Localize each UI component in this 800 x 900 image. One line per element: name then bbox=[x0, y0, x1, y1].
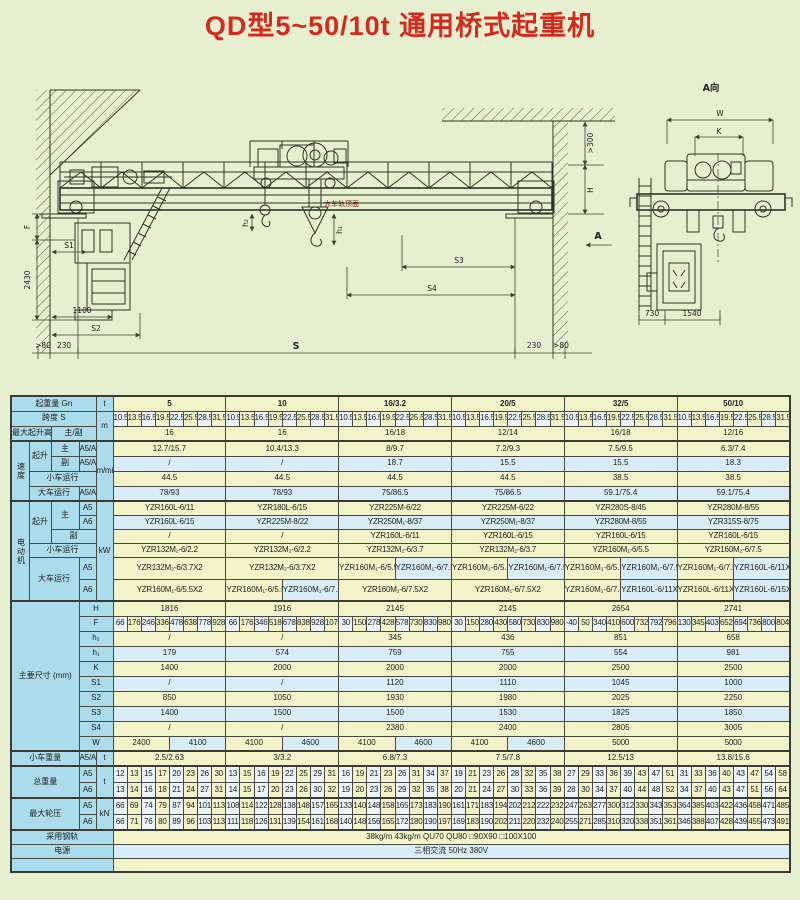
table-cell: 50/10 bbox=[677, 396, 790, 411]
table-cell: 3005 bbox=[677, 721, 790, 736]
table-cell: 491 bbox=[776, 814, 790, 830]
label-wheel-load: 最大轮压 bbox=[11, 798, 79, 830]
table-cell: 850 bbox=[113, 691, 226, 706]
dim-s2-label: S2 bbox=[91, 324, 101, 333]
table-cell: 25.5 bbox=[635, 411, 649, 426]
trolley-cross-section bbox=[665, 154, 773, 191]
table-cell: 22.5 bbox=[169, 411, 183, 426]
label-main: 主 bbox=[51, 441, 79, 456]
table-cell: 139 bbox=[282, 814, 296, 830]
table-cell: 13 bbox=[113, 782, 127, 798]
table-cell: 13.5 bbox=[127, 411, 141, 426]
table-cell: 140 bbox=[353, 798, 367, 814]
section-view-drawing: A向 W K bbox=[625, 58, 795, 348]
table-cell: 1078 bbox=[325, 616, 339, 631]
table-cell: 16 bbox=[113, 426, 226, 441]
label-dim-S2: S2 bbox=[79, 691, 113, 706]
table-cell: 364 bbox=[677, 798, 691, 814]
table-cell: 2000 bbox=[451, 661, 564, 676]
table-cell: 183 bbox=[465, 814, 479, 830]
table-cell: 150 bbox=[353, 616, 367, 631]
table-cell: 678 bbox=[282, 616, 296, 631]
dim-gt80-left-label: >80 bbox=[35, 341, 51, 350]
table-cell: 16 bbox=[226, 426, 339, 441]
table-cell: 336 bbox=[155, 616, 169, 631]
table-cell: 26 bbox=[395, 766, 409, 782]
table-cell: 148 bbox=[353, 814, 367, 830]
table-cell: 1980 bbox=[451, 691, 564, 706]
table-cell: 403 bbox=[705, 798, 719, 814]
label-motor-group: 电动机 bbox=[11, 501, 29, 601]
table-cell: 31 bbox=[677, 766, 691, 782]
table-cell: YZR250M₁-8/37 bbox=[451, 515, 564, 529]
dim-1540-label: 1540 bbox=[682, 309, 701, 318]
table-cell: 31 bbox=[212, 782, 226, 798]
table-cell: 4600 bbox=[508, 736, 564, 751]
table-cell: 730 bbox=[409, 616, 423, 631]
table-cell: 190 bbox=[480, 814, 494, 830]
table-cell: 54 bbox=[762, 766, 776, 782]
table-cell: 12.7/15.7 bbox=[113, 441, 226, 456]
table-cell: 28 bbox=[564, 782, 578, 798]
table-cell: 20/5 bbox=[451, 396, 564, 411]
table-cell: 40 bbox=[621, 782, 635, 798]
stairs bbox=[124, 188, 170, 260]
table-cell: 430 bbox=[494, 616, 508, 631]
table-cell: 27 bbox=[564, 766, 578, 782]
table-cell: 5 bbox=[113, 396, 226, 411]
table-cell: YZR160L-6/11 bbox=[113, 501, 226, 515]
table-cell: / bbox=[113, 529, 226, 543]
table-cell: 410 bbox=[607, 616, 621, 631]
dim-h2-label: h₂ bbox=[241, 219, 250, 227]
table-cell: 694 bbox=[733, 616, 747, 631]
label-lift-height: 最大起升高度 bbox=[11, 426, 51, 441]
table-cell: 38.5 bbox=[677, 471, 790, 486]
table-cell: 20 bbox=[268, 782, 282, 798]
label-dim-S4: S4 bbox=[79, 721, 113, 736]
table-cell: 473 bbox=[762, 814, 776, 830]
label-unit-t: t bbox=[96, 766, 113, 798]
table-cell: 458 bbox=[748, 798, 762, 814]
table-cell: 13.5 bbox=[240, 411, 254, 426]
table-cell: 1400 bbox=[113, 661, 226, 676]
table-cell: 183 bbox=[480, 798, 494, 814]
table-cell: 7.2/9.3 bbox=[451, 441, 564, 456]
table-cell: 13.5 bbox=[578, 411, 592, 426]
table-cell: YZR160M₁-6/5.5X2 bbox=[113, 579, 226, 601]
table-cell: 43 bbox=[733, 766, 747, 782]
label-unit-kn: kN bbox=[96, 798, 113, 830]
table-cell: 169 bbox=[451, 814, 465, 830]
table-cell: 202 bbox=[494, 814, 508, 830]
table-cell: 28.5 bbox=[423, 411, 437, 426]
table-cell: YZR132M₂-6/3.7 bbox=[339, 543, 452, 557]
table-cell: 792 bbox=[649, 616, 663, 631]
table-cell: 1050 bbox=[226, 691, 339, 706]
table-row: 小车重量A5/A6t2.5/2.633/3.26.8/7.37.5/7.812.… bbox=[11, 751, 790, 766]
table-cell: 8/9.7 bbox=[339, 441, 452, 456]
table-cell: 138 bbox=[282, 798, 296, 814]
table-cell: 19.5 bbox=[381, 411, 395, 426]
label-a6: A6 bbox=[79, 579, 96, 601]
table-cell: 26 bbox=[198, 766, 212, 782]
table-cell: 148 bbox=[367, 798, 381, 814]
table-cell: 345 bbox=[691, 616, 705, 631]
table-cell: 64 bbox=[776, 782, 790, 798]
table-cell: YZR280M-8/55 bbox=[677, 501, 790, 515]
table-cell: 246 bbox=[141, 616, 155, 631]
table-cell: 194 bbox=[494, 798, 508, 814]
dim-gt80-right-label: >80 bbox=[553, 341, 569, 350]
table-cell: 310 bbox=[607, 814, 621, 830]
table-cell: 12 bbox=[113, 766, 127, 782]
table-cell: YZR160L-6/15 bbox=[451, 529, 564, 543]
label-a5a6: A5/A6 bbox=[79, 486, 96, 501]
table-cell: / bbox=[113, 721, 226, 736]
table-cell: 172 bbox=[395, 814, 409, 830]
table-cell: 157 bbox=[310, 798, 324, 814]
table-cell: 31.5 bbox=[550, 411, 564, 426]
table-cell: 851 bbox=[564, 631, 677, 646]
table-cell: YZR160M₁-6/7.5X2 bbox=[395, 557, 451, 579]
label-hoist: 起升 bbox=[29, 441, 51, 471]
table-cell: 312 bbox=[621, 798, 635, 814]
page: QD型5~50/10t 通用桥式起重机 bbox=[0, 0, 800, 900]
table-cell: -40 bbox=[564, 616, 578, 631]
table-cell: 2400 bbox=[113, 736, 169, 751]
table-cell: 33 bbox=[522, 782, 536, 798]
table-cell: YZR160L-6/15 bbox=[564, 529, 677, 543]
table-cell: 165 bbox=[325, 798, 339, 814]
table-cell: YZR160M₁-6/7.5X2 bbox=[508, 557, 564, 579]
table-cell: 176 bbox=[127, 616, 141, 631]
table-cell: 15.5 bbox=[451, 456, 564, 471]
table-cell: 346 bbox=[254, 616, 268, 631]
label-trolley-weight: 小车重量 bbox=[11, 751, 79, 766]
table-cell: 10.5 bbox=[677, 411, 691, 426]
dimension-lines bbox=[32, 122, 612, 359]
table-cell: 20 bbox=[169, 766, 183, 782]
table-cell: 161 bbox=[451, 798, 465, 814]
table-row: 主要尺寸 (mm)H181619162145214526542741 bbox=[11, 601, 790, 616]
table-cell: YZR160L-6/15 bbox=[113, 515, 226, 529]
table-cell: YZR160M₁-6/7.5X2 bbox=[339, 579, 452, 601]
dim-2430-label: 2430 bbox=[23, 270, 32, 289]
table-cell: 2500 bbox=[564, 661, 677, 676]
table-cell: 33 bbox=[592, 766, 606, 782]
table-cell: 154 bbox=[296, 814, 310, 830]
table-cell: 212 bbox=[522, 798, 536, 814]
table-cell: 730 bbox=[522, 616, 536, 631]
table-cell: 190 bbox=[437, 798, 451, 814]
table-cell: 5000 bbox=[677, 736, 790, 751]
table-cell: 173 bbox=[409, 798, 423, 814]
label-main-aux: 主/副 bbox=[51, 426, 96, 441]
table-cell: 23 bbox=[282, 782, 296, 798]
table-cell: 23 bbox=[381, 766, 395, 782]
table-cell: YZR132M₂-6/3.7 bbox=[451, 543, 564, 557]
table-cell: 32 bbox=[409, 782, 423, 798]
view-arrow-label: A bbox=[594, 231, 602, 242]
table-cell: 10.5 bbox=[339, 411, 353, 426]
table-cell: 34 bbox=[423, 766, 437, 782]
table-cell: 385 bbox=[691, 798, 705, 814]
table-cell: 211 bbox=[508, 814, 522, 830]
table-cell: 22.5 bbox=[508, 411, 522, 426]
table-cell: 28.5 bbox=[198, 411, 212, 426]
table-cell: 23 bbox=[367, 782, 381, 798]
table-cell: 12.5/13 bbox=[564, 751, 677, 766]
table-cell: YZR160M₁-6/7.5X2 bbox=[451, 579, 564, 601]
table-cell: 30 bbox=[212, 766, 226, 782]
table-cell: 118 bbox=[240, 814, 254, 830]
table-cell: 16.5 bbox=[592, 411, 606, 426]
table-cell: / bbox=[226, 631, 339, 646]
table-cell: YZR160M₁-6/7.5X2 bbox=[677, 557, 733, 579]
table-cell: 31 bbox=[325, 766, 339, 782]
table-cell: 4100 bbox=[226, 736, 282, 751]
table-cell: 12/14 bbox=[451, 426, 564, 441]
table-row: 采用钢轨38kg/m 43kg/m QU70 QU80 □90X90 □100X… bbox=[11, 830, 790, 844]
table-cell: 10.4/13.3 bbox=[226, 441, 339, 456]
table-cell: 804 bbox=[776, 616, 790, 631]
table-cell: 16/18 bbox=[564, 426, 677, 441]
table-cell: YZR225M-6/22 bbox=[339, 501, 452, 515]
table-cell: 13 bbox=[127, 766, 141, 782]
table-cell: 15 bbox=[240, 782, 254, 798]
table-cell: 388 bbox=[691, 814, 705, 830]
table-cell: / bbox=[226, 676, 339, 691]
table-cell: 4100 bbox=[451, 736, 507, 751]
table-cell: 471 bbox=[762, 798, 776, 814]
table-cell: 32 bbox=[325, 782, 339, 798]
table-cell: / bbox=[113, 631, 226, 646]
table-cell: 108 bbox=[226, 798, 240, 814]
table-cell: 25.5 bbox=[522, 411, 536, 426]
table-cell: 6.8/7.3 bbox=[339, 751, 452, 766]
table-cell: YZR160M₁-6/5.5X2 bbox=[451, 557, 507, 579]
table-cell: 351 bbox=[649, 814, 663, 830]
table-cell: YZR132M₂-6/3.7X2 bbox=[226, 557, 339, 579]
table-cell: YZR160M₁-6/5.5X2 bbox=[226, 579, 282, 601]
table-cell: 232 bbox=[550, 798, 564, 814]
dim-f-label: F bbox=[23, 225, 32, 229]
table-cell: 2000 bbox=[339, 661, 452, 676]
table-cell: 71 bbox=[127, 814, 141, 830]
table-cell: 27 bbox=[198, 782, 212, 798]
table-cell: 4600 bbox=[282, 736, 338, 751]
table-cell: 66 bbox=[113, 616, 127, 631]
table-cell: YZR315S-8/75 bbox=[677, 515, 790, 529]
table-cell: 75/86.5 bbox=[339, 486, 452, 501]
table-cell: 23 bbox=[480, 766, 494, 782]
table-cell: 7.5/9.5 bbox=[564, 441, 677, 456]
table-cell: 44.5 bbox=[339, 471, 452, 486]
table-cell: 18.3 bbox=[677, 456, 790, 471]
table-cell: 20 bbox=[353, 782, 367, 798]
label-power: 电源 bbox=[11, 844, 113, 858]
table-cell: 4600 bbox=[395, 736, 451, 751]
table-cell: 179 bbox=[113, 646, 226, 661]
table-cell: 3/3.2 bbox=[226, 751, 339, 766]
table-row: 最大起升高度主/副161616/1812/1416/1812/16 bbox=[11, 426, 790, 441]
table-cell: 26 bbox=[381, 782, 395, 798]
label-unit-kw: kW bbox=[96, 501, 113, 601]
table-row: 电源三相交流 50Hz 380V bbox=[11, 844, 790, 858]
table-cell: 277 bbox=[592, 798, 606, 814]
table-cell: 10.5 bbox=[113, 411, 127, 426]
label-dim-h2: h₂ bbox=[79, 631, 113, 646]
table-cell: 74 bbox=[141, 798, 155, 814]
table-cell: 30 bbox=[339, 616, 353, 631]
table-cell: 31.5 bbox=[776, 411, 790, 426]
table-cell: 21 bbox=[465, 766, 479, 782]
table-cell: 16.5 bbox=[705, 411, 719, 426]
table-cell: YZR160L-6/11X2 bbox=[621, 579, 677, 601]
dim-1100-label: 1100 bbox=[72, 306, 91, 315]
table-cell: 2741 bbox=[677, 601, 790, 616]
table-cell: 22.5 bbox=[621, 411, 635, 426]
table-cell: 19.5 bbox=[155, 411, 169, 426]
table-row: A666717680899610311311111812613113915416… bbox=[11, 814, 790, 830]
table-cell: 10 bbox=[226, 396, 339, 411]
table-cell: 6.3/7.4 bbox=[677, 441, 790, 456]
table-cell: 580 bbox=[508, 616, 522, 631]
label-crane-travel: 大车运行 bbox=[29, 486, 79, 501]
table-cell: 518 bbox=[268, 616, 282, 631]
table-cell: 19.5 bbox=[607, 411, 621, 426]
table-cell: 130 bbox=[677, 616, 691, 631]
table-cell: 15.5 bbox=[564, 456, 677, 471]
table-cell: 1110 bbox=[451, 676, 564, 691]
table-cell: 35 bbox=[536, 766, 550, 782]
table-cell: 197 bbox=[437, 814, 451, 830]
table-cell: 35 bbox=[423, 782, 437, 798]
table-cell: 28.5 bbox=[536, 411, 550, 426]
table-cell: 16/18 bbox=[339, 426, 452, 441]
table-cell: 25 bbox=[296, 766, 310, 782]
table-cell: 1916 bbox=[226, 601, 339, 616]
table-cell: YZR160M₁-6/7.5X2 bbox=[282, 579, 338, 601]
table-cell: 578 bbox=[395, 616, 409, 631]
table-cell: 278 bbox=[367, 616, 381, 631]
table-cell: 16/3.2 bbox=[339, 396, 452, 411]
table-cell: YZR160M₂-6/7.5 bbox=[677, 543, 790, 557]
label-aux: 副 bbox=[51, 456, 79, 471]
table-cell: 16 bbox=[254, 766, 268, 782]
table-cell: 652 bbox=[719, 616, 733, 631]
table-cell: 10.5 bbox=[226, 411, 240, 426]
table-cell: 300 bbox=[607, 798, 621, 814]
table-cell: 22.5 bbox=[282, 411, 296, 426]
table-cell: 131 bbox=[268, 814, 282, 830]
table-cell: 240 bbox=[550, 814, 564, 830]
table-row: 速度起升主A5/A6m/min12.7/15.710.4/13.38/9.77.… bbox=[11, 441, 790, 456]
table-cell: 19 bbox=[268, 766, 282, 782]
table-cell: 10.5 bbox=[451, 411, 465, 426]
table-cell: 25.5 bbox=[184, 411, 198, 426]
table-cell: 285 bbox=[592, 814, 606, 830]
table-cell: 732 bbox=[635, 616, 649, 631]
table-cell: 12/16 bbox=[677, 426, 790, 441]
dim-gt300-label: >300 bbox=[586, 132, 595, 153]
label-dim-h1: h₁ bbox=[79, 646, 113, 661]
table-cell: 32/5 bbox=[564, 396, 677, 411]
spec-table-grid: 起重量 Gnt51016/3.220/532/550/10跨度 Sm10.513… bbox=[10, 395, 791, 873]
table-cell: 25.5 bbox=[748, 411, 762, 426]
table-cell: 928 bbox=[212, 616, 226, 631]
table-cell: 830 bbox=[423, 616, 437, 631]
table-cell: YZR160L-6/11X2 bbox=[733, 557, 789, 579]
table-cell: 247 bbox=[564, 798, 578, 814]
table-cell: 16.5 bbox=[254, 411, 268, 426]
table-cell: 2.5/2.63 bbox=[113, 751, 226, 766]
table-cell: 94 bbox=[184, 798, 198, 814]
table-cell: 21 bbox=[169, 782, 183, 798]
table-cell: 22.5 bbox=[395, 411, 409, 426]
table-cell: 10.5 bbox=[564, 411, 578, 426]
table-cell: 2025 bbox=[564, 691, 677, 706]
table-cell: 19.5 bbox=[494, 411, 508, 426]
table-row: K140020002000200025002500 bbox=[11, 661, 790, 676]
table-cell: YZR160L-6/11X2 bbox=[677, 579, 733, 601]
dim-230-right-label: 230 bbox=[527, 341, 542, 350]
page-title: QD型5~50/10t 通用桥式起重机 bbox=[0, 4, 800, 43]
table-cell: 330 bbox=[635, 798, 649, 814]
table-cell: YZR132M₂-6/2.2 bbox=[226, 543, 339, 557]
table-cell: 113 bbox=[212, 798, 226, 814]
table-cell: 19 bbox=[339, 782, 353, 798]
table-cell: 14 bbox=[226, 782, 240, 798]
table-cell: 58 bbox=[776, 766, 790, 782]
table-cell: 14 bbox=[127, 782, 141, 798]
table-cell: 16.5 bbox=[141, 411, 155, 426]
label-a6: A6 bbox=[79, 515, 96, 529]
table-cell: 271 bbox=[578, 814, 592, 830]
table-cell: 29 bbox=[310, 766, 324, 782]
table-row: F661762463364786387789286617634651867883… bbox=[11, 616, 790, 631]
label-unit-t: t bbox=[96, 396, 113, 411]
table-cell: 31.5 bbox=[663, 411, 677, 426]
table-cell: 1850 bbox=[677, 706, 790, 721]
table-cell: 96 bbox=[184, 814, 198, 830]
dim-s3-label: S3 bbox=[454, 256, 464, 265]
table-row: 跨度 Sm10.513.516.519.522.525.528.531.510.… bbox=[11, 411, 790, 426]
dim-230-left-label: 230 bbox=[57, 341, 72, 350]
label-a5: A5 bbox=[79, 798, 96, 814]
table-cell: 103 bbox=[198, 814, 212, 830]
table-cell: 101 bbox=[198, 798, 212, 814]
table-row: A6YZR160M₁-6/5.5X2YZR160M₁-6/5.5X2YZR160… bbox=[11, 579, 790, 601]
table-cell: 2145 bbox=[339, 601, 452, 616]
table-cell: 478 bbox=[169, 616, 183, 631]
table-cell: 830 bbox=[536, 616, 550, 631]
table-cell: 34 bbox=[677, 782, 691, 798]
table-cell: 439 bbox=[733, 814, 747, 830]
table-cell: 27 bbox=[494, 782, 508, 798]
table-cell: 48 bbox=[649, 782, 663, 798]
table-cell: YZR160M₁-6/5.5X2 bbox=[564, 557, 620, 579]
table-cell: YZR160L-6/11 bbox=[339, 529, 452, 543]
table-cell: 15 bbox=[141, 766, 155, 782]
table-cell: 40 bbox=[719, 766, 733, 782]
table-cell: 39 bbox=[550, 782, 564, 798]
table-cell: YZR160L-6/15 bbox=[677, 529, 790, 543]
table-cell: 1825 bbox=[564, 706, 677, 721]
table-cell: 638 bbox=[184, 616, 198, 631]
table-cell: 20 bbox=[451, 782, 465, 798]
